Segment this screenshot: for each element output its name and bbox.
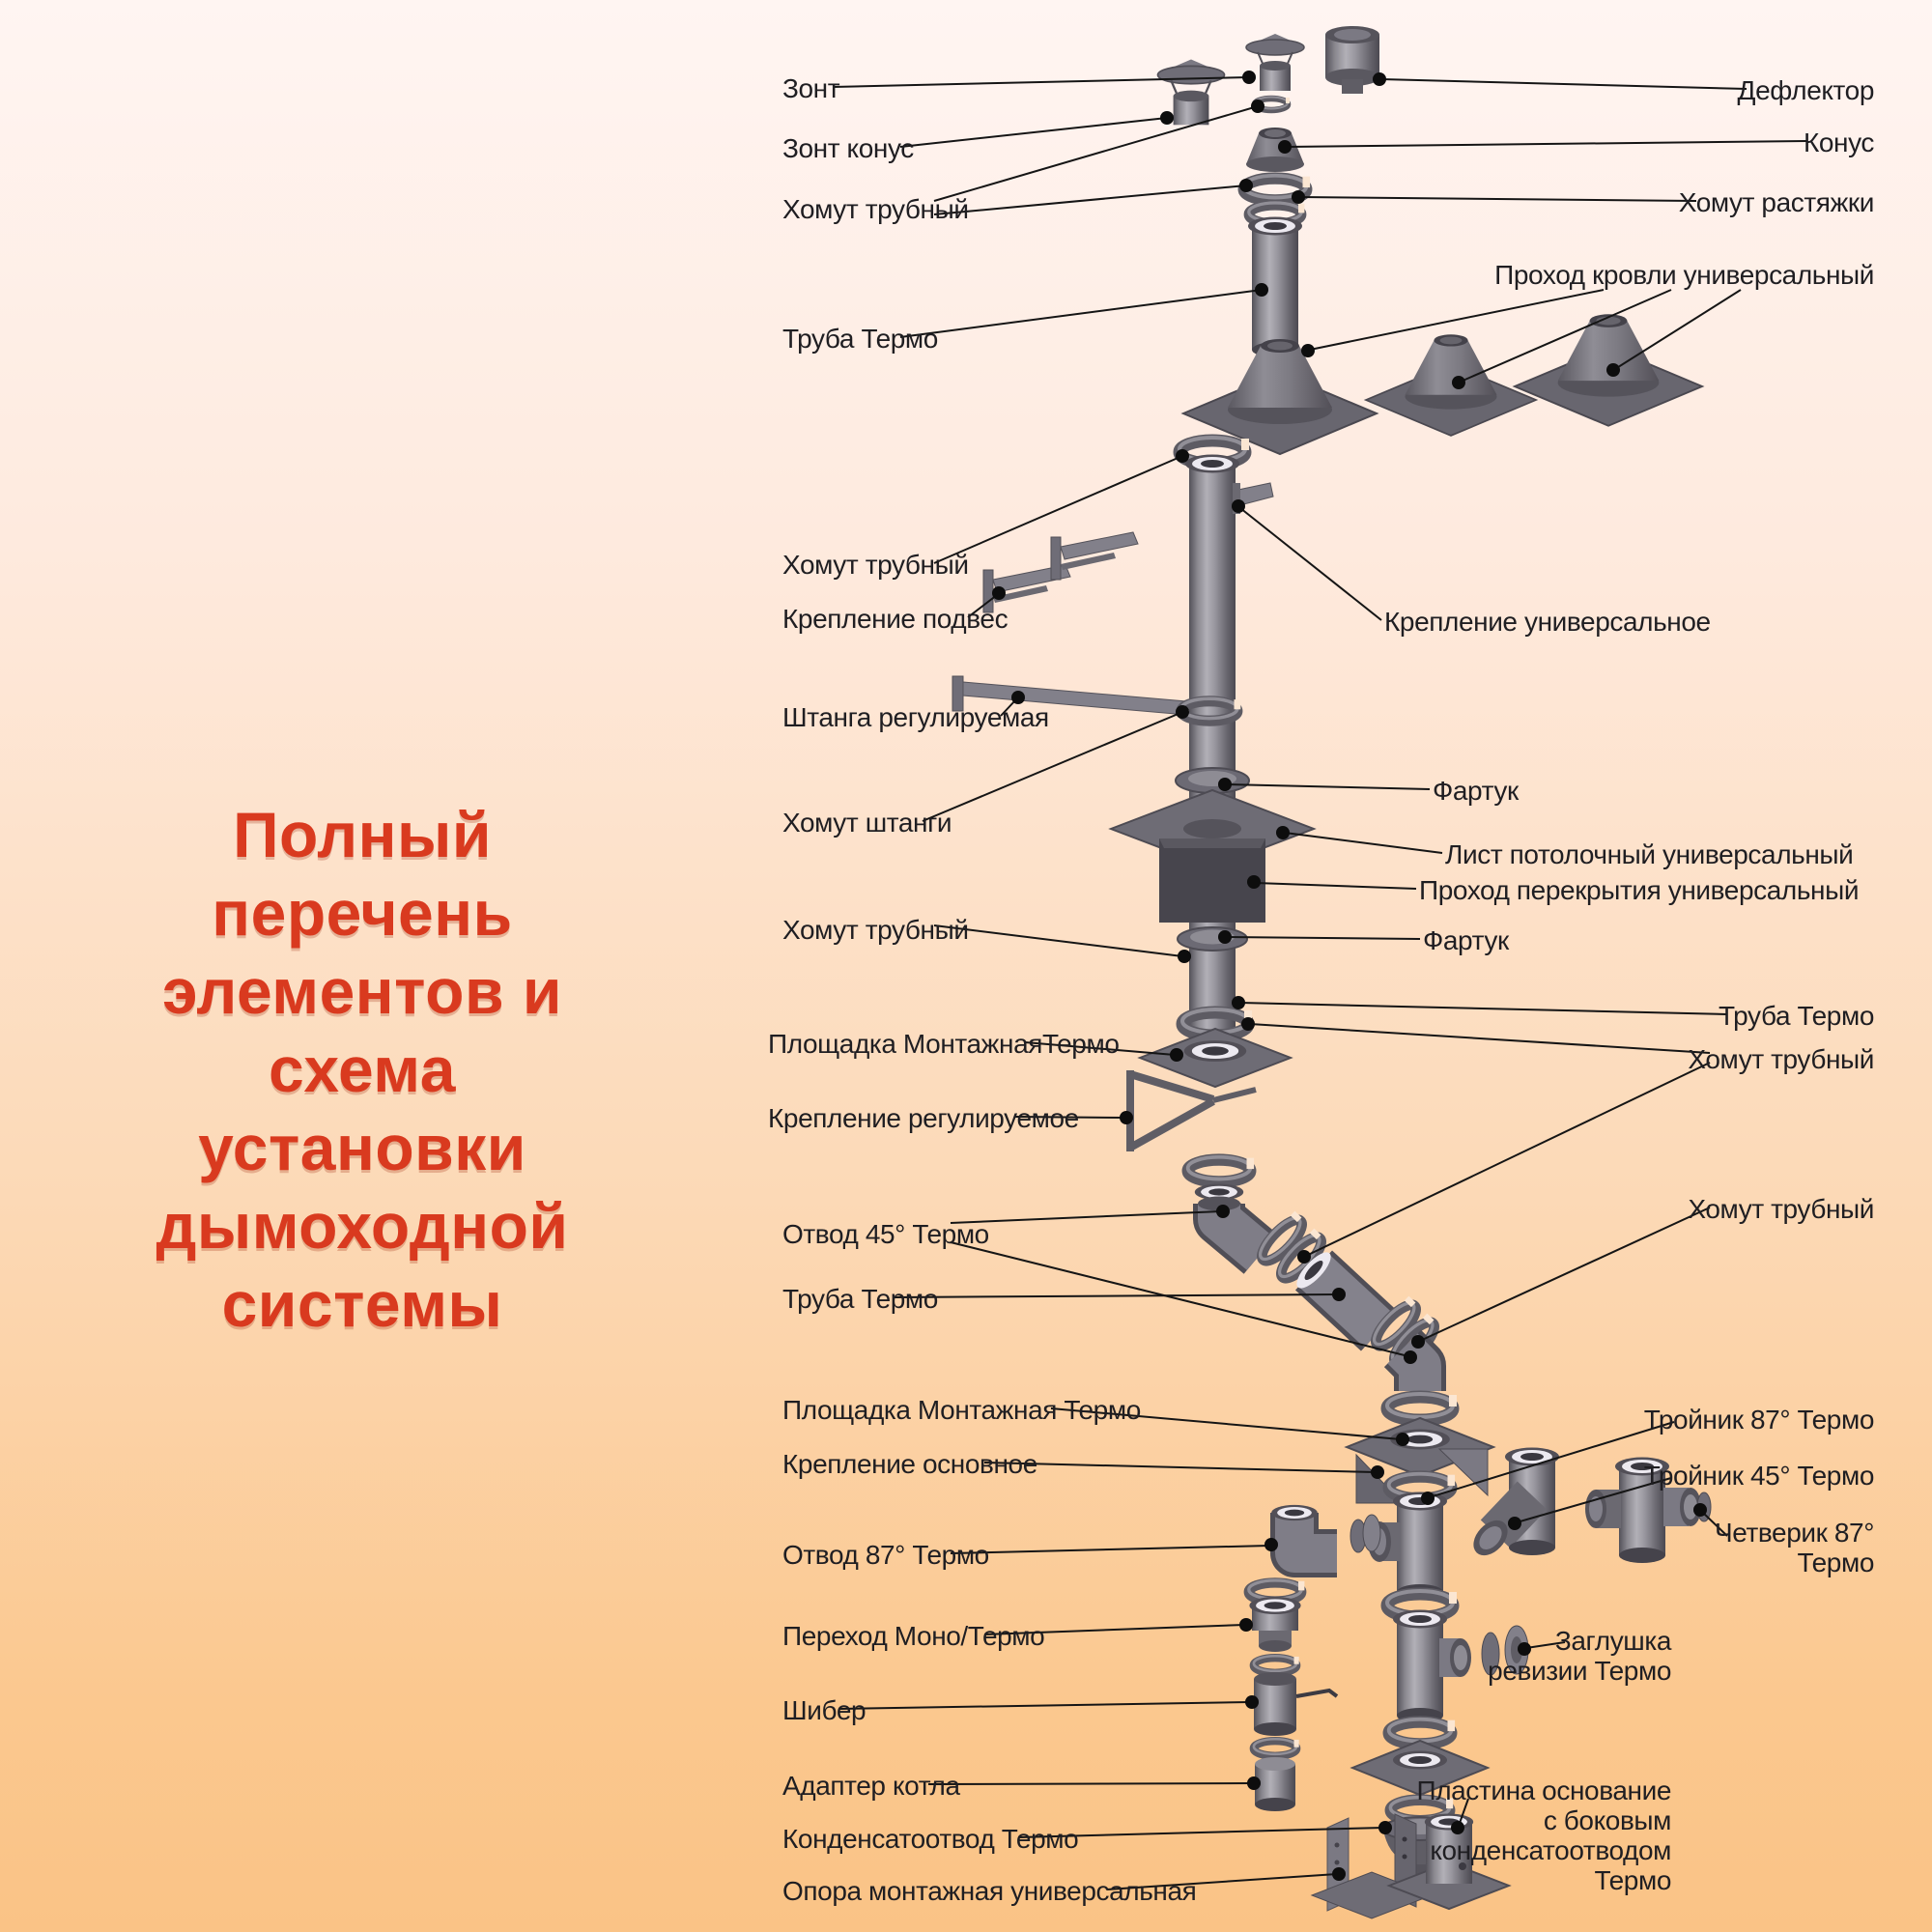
label-list-potolochny-universalny: Лист потолочный универсальный xyxy=(1445,839,1853,869)
label-homut-trubny-r1: Хомут трубный xyxy=(1688,1044,1874,1074)
label-konus: Конус xyxy=(1804,128,1874,157)
part-zont-small xyxy=(1246,34,1304,91)
part-homut-sub-2 xyxy=(1254,1656,1299,1673)
label-chetverik-87-termo: Четверик 87° Термо xyxy=(1715,1518,1874,1577)
part-homut-sub-3 xyxy=(1254,1739,1299,1756)
label-prokhod-krovli-universalny: Проход кровли универсальный xyxy=(1494,260,1874,290)
part-troynik-87 xyxy=(1368,1492,1447,1601)
part-truba-middle xyxy=(1185,455,1239,1059)
label-truba-termo-r: Труба Термо xyxy=(1719,1001,1874,1031)
label-plastina-osnovanie: Пластина основание с боковым конденсатоо… xyxy=(1416,1776,1671,1895)
part-otvod-87 xyxy=(1271,1505,1337,1553)
poster: Полный перечень элементов и схема устано… xyxy=(0,0,1932,1932)
label-otvod-87-termo: Отвод 87° Термо xyxy=(782,1540,989,1570)
label-kreplenie-universalnoe: Крепление универсальное xyxy=(1384,607,1711,637)
part-fartuk-2 xyxy=(1178,927,1247,951)
part-perekhod-mono-termo xyxy=(1249,1597,1300,1652)
part-deflektor xyxy=(1325,26,1379,94)
label-kreplenie-reguliruemoe: Крепление регулируемое xyxy=(768,1103,1079,1133)
label-shiber: Шибер xyxy=(782,1695,866,1725)
part-otvod-45-1 xyxy=(1198,1197,1261,1255)
part-shiber xyxy=(1254,1672,1337,1736)
label-truba-termo-1: Труба Термо xyxy=(782,324,938,354)
label-prokhod-perekrytiya-universalny: Проход перекрытия универсальный xyxy=(1419,875,1859,905)
leader-lines xyxy=(833,71,1806,1889)
label-homut-trubny-r2: Хомут трубный xyxy=(1688,1194,1874,1224)
part-kreplenie-reguliruemoe xyxy=(1130,1070,1256,1151)
part-adapter-kotla xyxy=(1255,1757,1295,1811)
label-shtanga-reguliruemaya: Штанга регулируемая xyxy=(782,702,1049,732)
label-troynik-45-termo: Тройник 45° Термо xyxy=(1644,1461,1874,1491)
label-ploshchadka-montazhnaya-termo-1: Площадка МонтажнаяТермо xyxy=(768,1029,1120,1059)
label-zont-konus: Зонт конус xyxy=(782,133,914,163)
label-kreplenie-osnovnoe: Крепление основное xyxy=(782,1449,1037,1479)
page-title: Полный перечень элементов и схема устано… xyxy=(75,796,649,1344)
label-troynik-87-termo: Тройник 87° Термо xyxy=(1644,1405,1874,1435)
label-homut-trubny-3: Хомут трубный xyxy=(782,915,969,945)
part-dock-discs xyxy=(1350,1515,1380,1552)
label-kreplenie-podves: Крепление подвес xyxy=(782,604,1008,634)
part-homut-trubny-5 xyxy=(1188,1157,1254,1182)
label-homut-shtangi: Хомут штанги xyxy=(782,808,952,838)
part-homut-trubny-9 xyxy=(1389,1719,1455,1745)
label-zont: Зонт xyxy=(782,73,839,103)
label-perekhod-mono-termo: Переход Моно/Термо xyxy=(782,1621,1044,1651)
label-deflektor: Дефлектор xyxy=(1738,75,1875,105)
part-troynik-revizii xyxy=(1393,1610,1471,1724)
label-adapter-kotla: Адаптер котла xyxy=(782,1771,960,1801)
label-homut-trubny-1: Хомут трубный xyxy=(782,194,969,224)
label-zaglushka-revizii-termo: Заглушка ревизии Термо xyxy=(1488,1626,1671,1686)
part-ploshchadka-1 xyxy=(1140,1029,1291,1087)
label-homut-rastyazhki: Хомут растяжки xyxy=(1679,187,1874,217)
label-opora-montazhnaya-universalnaya: Опора монтажная универсальная xyxy=(782,1876,1196,1906)
label-fartuk-2: Фартук xyxy=(1423,925,1509,955)
label-fartuk-1: Фартук xyxy=(1433,776,1519,806)
label-homut-trubny-2: Хомут трубный xyxy=(782,550,969,580)
label-otvod-45-termo: Отвод 45° Термо xyxy=(782,1219,989,1249)
label-ploshchadka-montazhnaya-termo-2: Площадка Монтажная Термо xyxy=(782,1395,1141,1425)
label-kondensatootvod-termo: Конденсатоотвод Термо xyxy=(782,1824,1078,1854)
label-truba-termo-2: Труба Термо xyxy=(782,1284,938,1314)
part-konus xyxy=(1246,128,1304,172)
part-prokhod-krovli-2 xyxy=(1366,334,1536,436)
part-homut-trubny-6 xyxy=(1387,1394,1457,1420)
